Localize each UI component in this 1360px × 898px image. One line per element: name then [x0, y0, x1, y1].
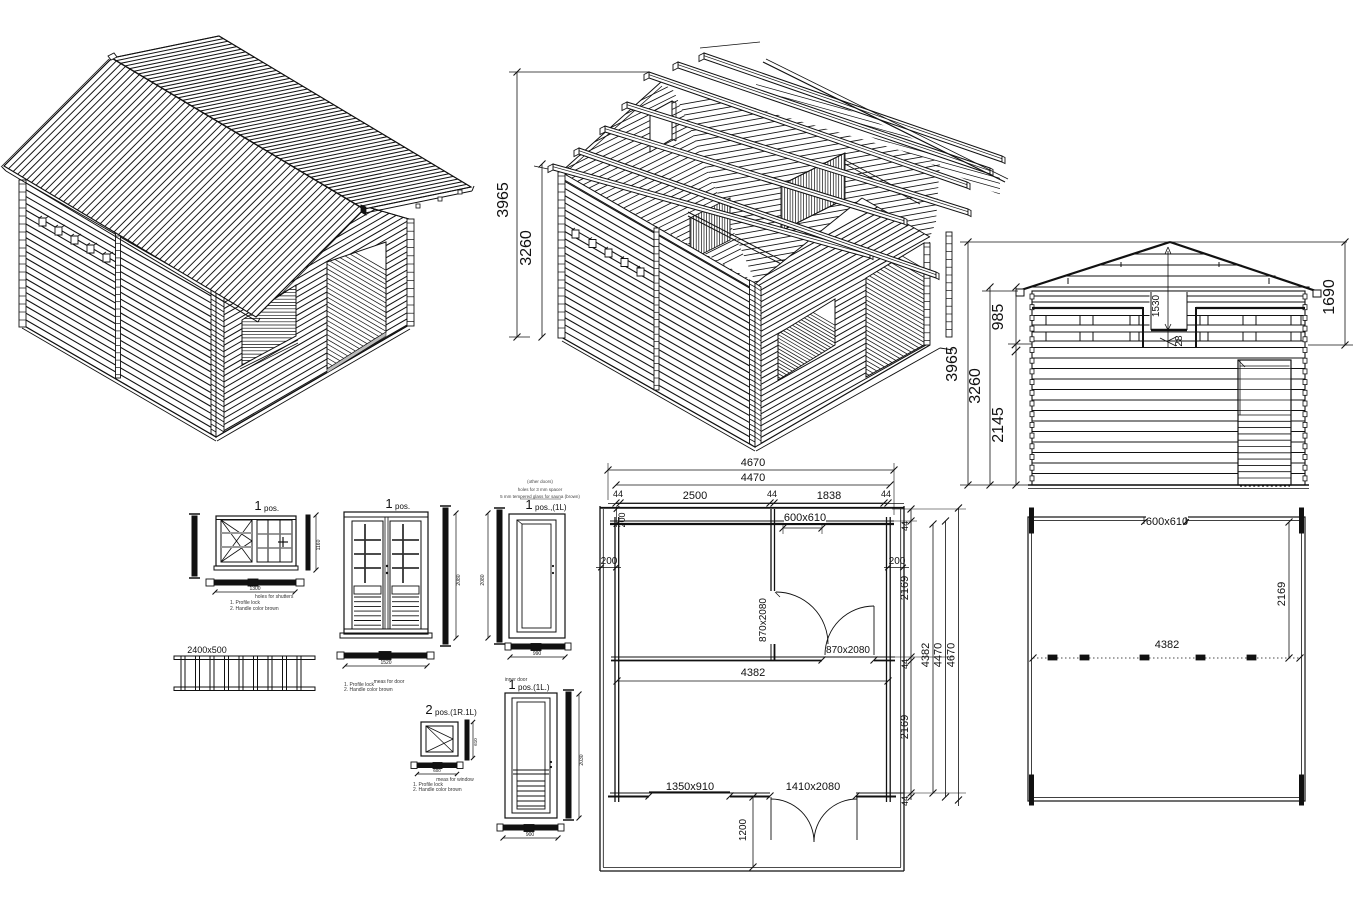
- svg-text:200: 200: [617, 512, 627, 527]
- svg-text:pos.: pos.: [395, 502, 410, 511]
- svg-text:holes for shutters: holes for shutters: [255, 594, 294, 600]
- svg-text:1: 1: [385, 496, 392, 511]
- svg-text:2. Handle color brown: 2. Handle color brown: [413, 787, 462, 793]
- svg-text:44: 44: [900, 796, 910, 806]
- svg-text:870x2080: 870x2080: [758, 598, 769, 642]
- svg-text:2169: 2169: [899, 715, 911, 739]
- svg-text:28: 28: [1174, 335, 1185, 347]
- svg-text:meas for door: meas for door: [374, 679, 405, 685]
- svg-text:2400x500: 2400x500: [187, 645, 227, 655]
- svg-text:1690: 1690: [1321, 279, 1338, 315]
- svg-text:1: 1: [254, 498, 261, 513]
- svg-text:1410x2080: 1410x2080: [786, 781, 840, 793]
- svg-text:2080: 2080: [456, 574, 462, 585]
- svg-text:600: 600: [433, 768, 441, 773]
- svg-text:4470: 4470: [741, 472, 765, 484]
- svg-text:2145: 2145: [990, 407, 1007, 443]
- svg-text:1: 1: [508, 677, 515, 692]
- svg-text:44: 44: [767, 489, 777, 499]
- svg-text:4470: 4470: [933, 643, 945, 667]
- svg-text:4670: 4670: [946, 643, 958, 667]
- svg-text:985: 985: [990, 304, 1007, 331]
- svg-text:4382: 4382: [920, 643, 932, 667]
- svg-text:2080: 2080: [480, 574, 486, 585]
- svg-text:2169: 2169: [899, 576, 911, 600]
- svg-text:3965: 3965: [495, 182, 512, 218]
- svg-text:870x2080: 870x2080: [826, 645, 870, 656]
- svg-text:900: 900: [526, 832, 535, 838]
- svg-text:1530: 1530: [1151, 294, 1162, 317]
- svg-text:(other doors): (other doors): [527, 479, 553, 484]
- svg-text:44: 44: [613, 489, 623, 499]
- svg-text:3260: 3260: [967, 368, 984, 404]
- svg-text:44: 44: [900, 659, 910, 669]
- svg-text:1520: 1520: [380, 660, 391, 666]
- svg-text:990: 990: [533, 651, 542, 657]
- svg-text:600x610: 600x610: [1146, 516, 1188, 528]
- svg-text:200: 200: [889, 556, 906, 567]
- svg-text:3260: 3260: [518, 230, 535, 266]
- svg-text:pos.,(1L): pos.,(1L): [535, 503, 567, 512]
- svg-text:pos.: pos.: [264, 504, 279, 513]
- svg-text:600x610: 600x610: [784, 512, 826, 524]
- svg-text:2030: 2030: [579, 754, 585, 765]
- svg-text:pos.(1L.): pos.(1L.): [518, 683, 550, 692]
- svg-text:1160: 1160: [316, 539, 322, 550]
- svg-text:4382: 4382: [741, 667, 765, 679]
- svg-text:2: 2: [425, 702, 432, 717]
- svg-text:pos.(1R.1L): pos.(1R.1L): [435, 708, 477, 717]
- svg-text:2500: 2500: [683, 490, 707, 502]
- svg-text:holes for 3 mm spacer: holes for 3 mm spacer: [518, 487, 563, 492]
- svg-text:2. Handle color brown: 2. Handle color brown: [230, 606, 279, 612]
- svg-text:610: 610: [473, 738, 478, 746]
- svg-text:1350x910: 1350x910: [666, 781, 714, 793]
- svg-text:4670: 4670: [741, 457, 765, 469]
- svg-text:44: 44: [881, 489, 891, 499]
- svg-text:2. Handle color brown: 2. Handle color brown: [344, 687, 393, 693]
- svg-text:1300: 1300: [249, 586, 260, 592]
- svg-text:44: 44: [900, 521, 910, 531]
- svg-text:1: 1: [525, 497, 532, 512]
- svg-text:1838: 1838: [817, 490, 841, 502]
- svg-text:4382: 4382: [1155, 639, 1179, 651]
- svg-text:1200: 1200: [738, 818, 749, 841]
- svg-text:2169: 2169: [1276, 582, 1288, 606]
- svg-text:5 mm tempered glass for sauna: 5 mm tempered glass for sauna (brown): [500, 494, 580, 499]
- svg-text:3965: 3965: [944, 346, 961, 382]
